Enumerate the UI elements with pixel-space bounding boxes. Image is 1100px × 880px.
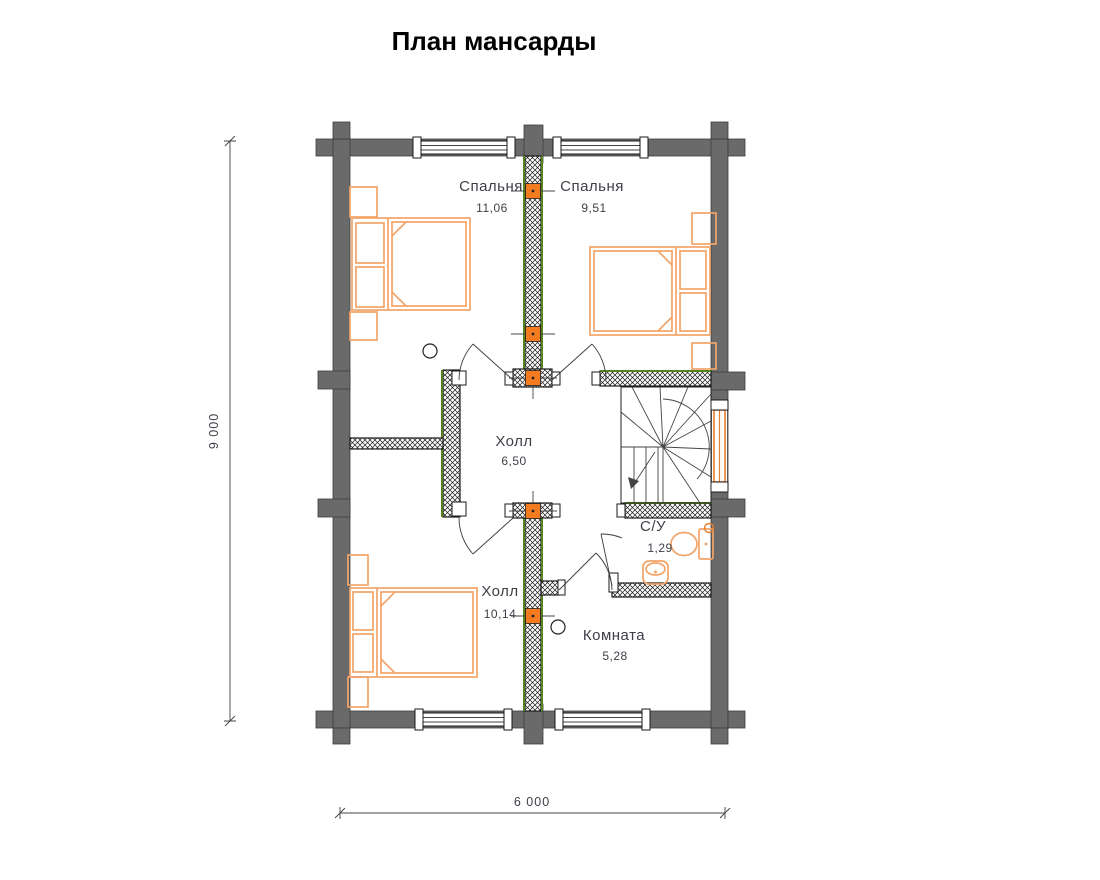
- light-icon: [423, 344, 437, 358]
- room-area-bedroom2: 9,51: [581, 201, 606, 215]
- log-stub: [711, 122, 728, 139]
- connector-marker: [526, 184, 541, 199]
- log-stub: [318, 371, 350, 389]
- log-stub: [316, 711, 333, 728]
- log-stub: [728, 139, 745, 156]
- bed-bedroom1: [350, 187, 470, 340]
- bed-bedroom2: [590, 213, 716, 369]
- log-stub: [318, 499, 350, 517]
- wall-segment: [333, 139, 350, 728]
- room-label-bathroom: С/У: [640, 518, 666, 535]
- page-title: План мансарды: [392, 26, 597, 56]
- connector-marker: [526, 504, 541, 519]
- dimension-horizontal-label: 6 000: [514, 795, 550, 809]
- bathroom-north-wall: [625, 503, 711, 518]
- dimension-vertical-label: 9 000: [207, 413, 221, 449]
- log-stub: [711, 728, 728, 744]
- room-area-bathroom: 1,29: [647, 541, 672, 555]
- room-label-hall-lower: Холл: [481, 583, 518, 600]
- staircase: [621, 387, 711, 503]
- log-stub: [333, 728, 350, 744]
- bedroom2-south-wall: [600, 371, 711, 386]
- window-stair-right: [711, 400, 728, 492]
- bed-hall-lower: [348, 555, 477, 707]
- stair-direction-arrow: [634, 452, 655, 484]
- room-area-hall-center: 6,50: [501, 454, 526, 468]
- bathroom-south-wall: [612, 583, 711, 597]
- log-stub: [333, 122, 350, 139]
- log-stub: [316, 139, 333, 156]
- log-stub: [728, 711, 745, 728]
- left-room-divider: [350, 438, 443, 449]
- door-hall-lower: [459, 518, 513, 554]
- dimension-horizontal: 6 000: [335, 795, 730, 819]
- door-room: [559, 553, 612, 590]
- floor-plan: План мансарды: [0, 0, 1100, 880]
- toilet-icon: [671, 529, 713, 559]
- room-area-bedroom1: 11,06: [476, 201, 508, 215]
- connector-marker: [526, 609, 541, 624]
- room-label-bedroom1: Спальня: [459, 178, 523, 195]
- room-label-hall-center: Холл: [495, 433, 532, 450]
- room-area-room: 5,28: [602, 649, 627, 663]
- log-stub: [711, 372, 745, 390]
- dimension-vertical: 9 000: [207, 136, 236, 726]
- room-area-hall-lower: 10,14: [484, 607, 517, 621]
- light-icon: [551, 620, 565, 634]
- room-label-bedroom2: Спальня: [560, 178, 624, 195]
- sink-icon: [643, 561, 668, 584]
- connector-marker: [526, 371, 541, 386]
- connector-marker: [526, 327, 541, 342]
- room-doorway-stub: [541, 581, 559, 595]
- hall-left-wall: [443, 370, 460, 517]
- room-label-room: Комната: [583, 627, 645, 644]
- log-stub: [711, 499, 745, 517]
